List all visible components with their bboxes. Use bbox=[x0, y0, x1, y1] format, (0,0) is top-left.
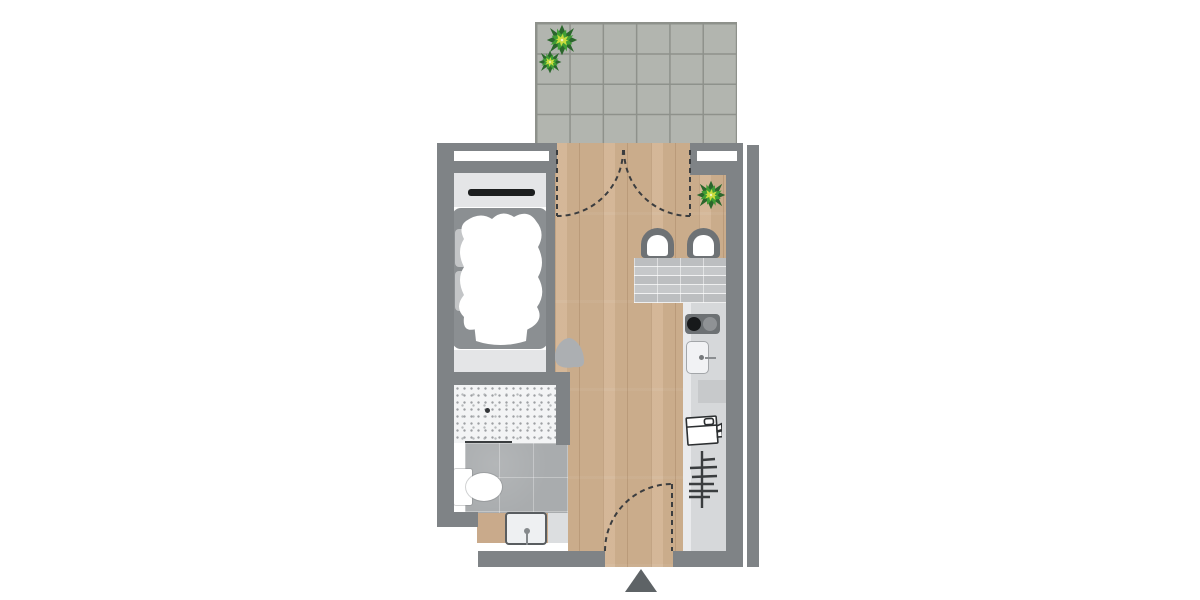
sink-faucet-arm bbox=[705, 357, 716, 359]
wall-right-inner bbox=[726, 161, 743, 567]
shower bbox=[454, 385, 556, 443]
wall-divider-sleeping bbox=[546, 161, 555, 385]
chair-left bbox=[641, 228, 674, 258]
plant-icon bbox=[696, 180, 726, 210]
floor-plan bbox=[0, 0, 1200, 600]
entrance-marker-icon bbox=[625, 569, 657, 592]
kitchen-counter-appliance bbox=[698, 380, 726, 403]
chair-cushion bbox=[693, 235, 714, 256]
sink-faucet-icon bbox=[699, 355, 704, 360]
wall-left bbox=[437, 143, 454, 527]
burner-right-icon bbox=[703, 317, 717, 331]
wall-bottom-right bbox=[673, 551, 728, 567]
wall-right-outer bbox=[747, 145, 759, 567]
breakfast-bar bbox=[634, 258, 726, 303]
beanbag bbox=[553, 337, 587, 369]
plant-icon bbox=[538, 50, 562, 74]
foot-bench bbox=[454, 350, 546, 372]
burner-left-icon bbox=[687, 317, 701, 331]
shelf-rack-icon bbox=[686, 450, 720, 510]
washbasin-counter-side bbox=[548, 513, 568, 543]
wall-bathroom-top bbox=[437, 372, 570, 385]
bed bbox=[452, 207, 548, 350]
fridge-icon bbox=[684, 411, 722, 449]
wardrobe-rail bbox=[468, 189, 535, 196]
window-top-right bbox=[697, 151, 737, 161]
washbasin-faucet-stem bbox=[526, 533, 528, 545]
chair-right bbox=[687, 228, 720, 258]
window-top-left bbox=[445, 151, 549, 161]
wall-shower-right bbox=[556, 372, 570, 445]
wall-stub-bottom-left bbox=[437, 512, 478, 527]
shower-drain bbox=[485, 408, 490, 413]
wall-bottom-left bbox=[478, 551, 605, 567]
toilet-bowl bbox=[466, 473, 502, 501]
chair-cushion bbox=[647, 235, 668, 256]
